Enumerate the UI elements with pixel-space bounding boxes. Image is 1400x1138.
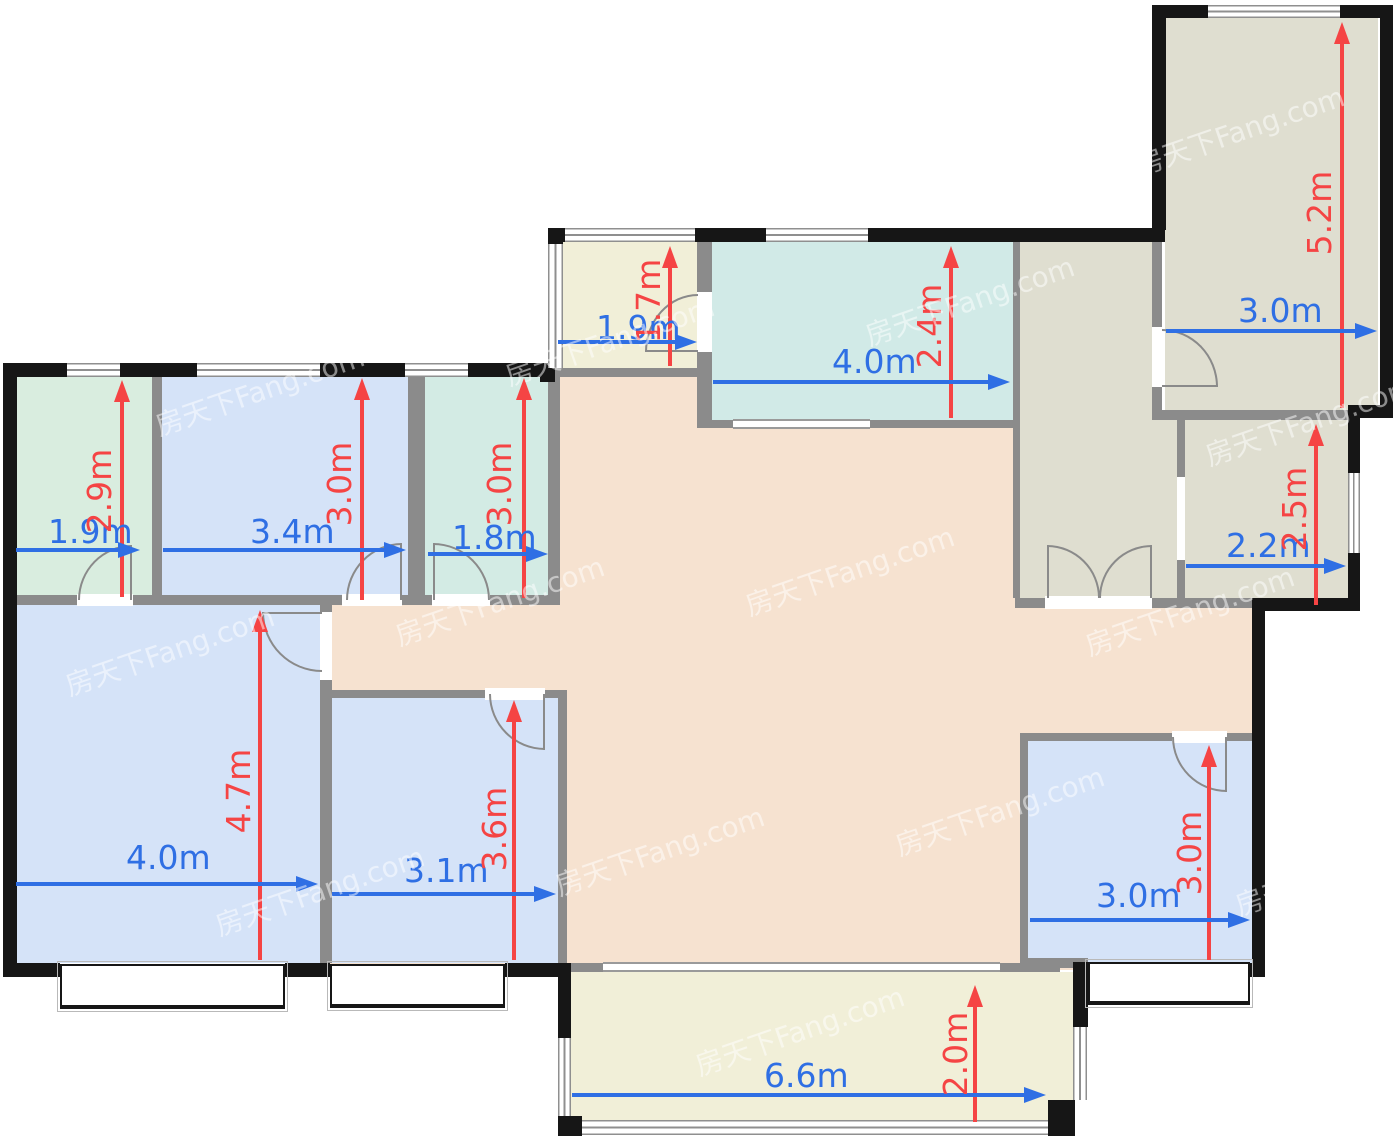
outer-wall	[558, 1116, 582, 1136]
dim-arrow-vertical	[522, 398, 526, 598]
outer-wall	[1152, 5, 1166, 230]
arrow-right-icon	[534, 886, 556, 902]
outer-wall	[1252, 598, 1265, 977]
window	[197, 363, 320, 377]
dim-label-height: 3.6m	[475, 784, 511, 874]
dim-label-height: 3.0m	[480, 439, 516, 529]
window	[565, 228, 695, 242]
outer-wall	[1250, 963, 1265, 977]
dim-label-height: 3.0m	[320, 439, 356, 529]
arrow-right-icon	[1324, 558, 1346, 574]
arrow-right-icon	[1355, 323, 1377, 339]
room-fill-kitchen-b	[1152, 420, 1178, 598]
arrow-up-icon	[1201, 745, 1217, 767]
dim-label-width: 6.6m	[764, 1056, 849, 1095]
wall	[558, 690, 567, 970]
wall	[408, 375, 425, 597]
door-gap	[1177, 477, 1185, 560]
outer-wall	[558, 963, 571, 1038]
arrow-up-icon	[354, 378, 370, 400]
room-fill-dining	[712, 242, 1013, 420]
door-gap	[697, 292, 712, 352]
arrow-up-icon	[252, 610, 268, 632]
window	[1208, 5, 1340, 18]
dim-arrow-vertical	[258, 630, 262, 960]
arrow-up-icon	[1308, 424, 1324, 446]
outer-wall	[1380, 5, 1393, 418]
dim-label-height: 5.2m	[1300, 168, 1336, 258]
watermark: 房天下Fang.com	[389, 55, 609, 164]
outer-wall	[285, 963, 330, 977]
dim-label-width: 4.0m	[832, 342, 917, 381]
dim-label-height: 2.9m	[80, 446, 116, 536]
dim-arrow-horizontal	[332, 892, 534, 896]
dim-label-width: 3.0m	[1096, 876, 1181, 915]
dim-arrow-vertical	[120, 400, 124, 597]
arrow-right-icon	[1024, 1087, 1046, 1103]
arrow-up-icon	[506, 700, 522, 722]
dim-arrow-vertical	[360, 398, 364, 600]
arrow-right-icon	[384, 542, 406, 558]
watermark: 房天下Fang.com	[759, 25, 979, 134]
dim-label-width: 4.0m	[126, 838, 211, 877]
dim-label-height: 2.5m	[1275, 464, 1311, 554]
dim-label-height: 3.0m	[1170, 808, 1206, 898]
bay-window	[1088, 962, 1250, 1005]
dim-label-height: 1.7m	[629, 256, 665, 346]
outer-wall	[3, 963, 60, 977]
room-fill-kitchen-a	[1020, 242, 1153, 598]
wall	[1152, 230, 1162, 420]
dim-label-height: 2.0m	[936, 1009, 972, 1099]
outer-wall	[1048, 1100, 1075, 1136]
watermark: 房天下Fang.com	[339, 1005, 559, 1114]
window	[766, 228, 868, 242]
floor-plan: 1.9m 3.4m 1.8m 1.9m 4.0m 3.0m 2.2m 4.0m …	[0, 0, 1400, 1138]
dim-label-height: 4.7m	[219, 746, 255, 836]
window	[548, 244, 563, 368]
outer-wall	[1252, 598, 1360, 611]
dim-arrow-horizontal	[16, 882, 296, 886]
window-opening	[733, 419, 870, 429]
wall	[553, 368, 700, 377]
wall	[152, 375, 162, 597]
window	[1348, 473, 1360, 553]
window	[582, 1120, 1048, 1135]
dim-arrow-vertical	[1340, 42, 1344, 408]
arrow-right-icon	[296, 876, 318, 892]
window	[405, 363, 468, 377]
outer-wall	[540, 368, 555, 382]
arrow-up-icon	[943, 246, 959, 268]
arrow-up-icon	[516, 378, 532, 400]
dim-arrow-vertical	[1314, 444, 1318, 605]
door-gap	[1152, 327, 1162, 387]
watermark: 房天下Fang.com	[29, 105, 249, 214]
window	[558, 1038, 571, 1116]
dim-label-width: 3.0m	[1238, 291, 1323, 330]
wall	[1160, 410, 1355, 420]
window	[1073, 1027, 1087, 1100]
arrow-up-icon	[1334, 22, 1350, 44]
wall	[1020, 741, 1028, 963]
outer-wall	[1073, 962, 1088, 1027]
bay-window	[60, 964, 285, 1009]
dim-label-height: 2.4m	[910, 281, 946, 371]
arrow-up-icon	[967, 985, 983, 1007]
dim-arrow-vertical	[949, 266, 953, 418]
room-fill-balcony	[570, 972, 1073, 1120]
room-fill-master-bedroom	[15, 605, 320, 963]
wall	[548, 368, 560, 605]
arrow-up-icon	[114, 380, 130, 402]
dim-arrow-horizontal	[1030, 918, 1228, 922]
sliding-door-opening	[603, 962, 1000, 972]
window	[67, 363, 120, 377]
wall	[1013, 242, 1020, 598]
bay-window	[330, 964, 505, 1008]
arrow-right-icon	[988, 374, 1010, 390]
outer-wall	[3, 363, 17, 977]
arrow-right-icon	[1228, 912, 1250, 928]
